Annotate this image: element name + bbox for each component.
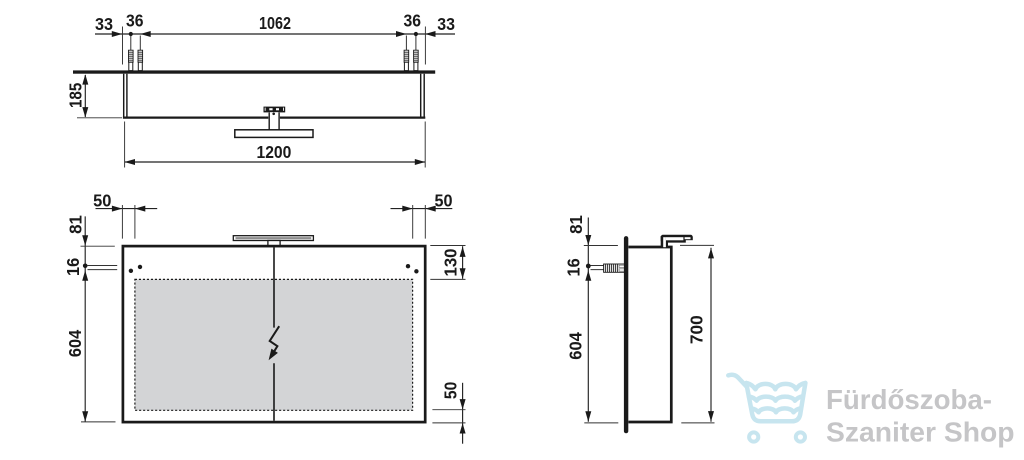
svg-text:1200: 1200: [257, 142, 292, 162]
svg-text:50: 50: [440, 382, 460, 400]
svg-text:81: 81: [66, 215, 86, 234]
svg-text:16: 16: [563, 258, 583, 276]
svg-text:604: 604: [565, 332, 585, 360]
svg-text:130: 130: [441, 248, 461, 276]
svg-text:700: 700: [687, 315, 707, 344]
svg-text:50: 50: [93, 190, 111, 210]
svg-text:33: 33: [95, 14, 113, 34]
svg-text:Fürdőszoba-: Fürdőszoba-: [826, 384, 992, 415]
svg-text:185: 185: [66, 83, 86, 108]
svg-text:33: 33: [437, 14, 455, 34]
svg-text:604: 604: [65, 330, 85, 357]
svg-text:Szaniter Shop: Szaniter Shop: [826, 417, 1015, 448]
svg-text:36: 36: [404, 11, 422, 31]
svg-text:16: 16: [63, 258, 83, 276]
svg-text:36: 36: [126, 11, 144, 31]
svg-text:1062: 1062: [259, 13, 291, 33]
svg-text:81: 81: [566, 215, 586, 234]
svg-text:50: 50: [435, 190, 453, 210]
